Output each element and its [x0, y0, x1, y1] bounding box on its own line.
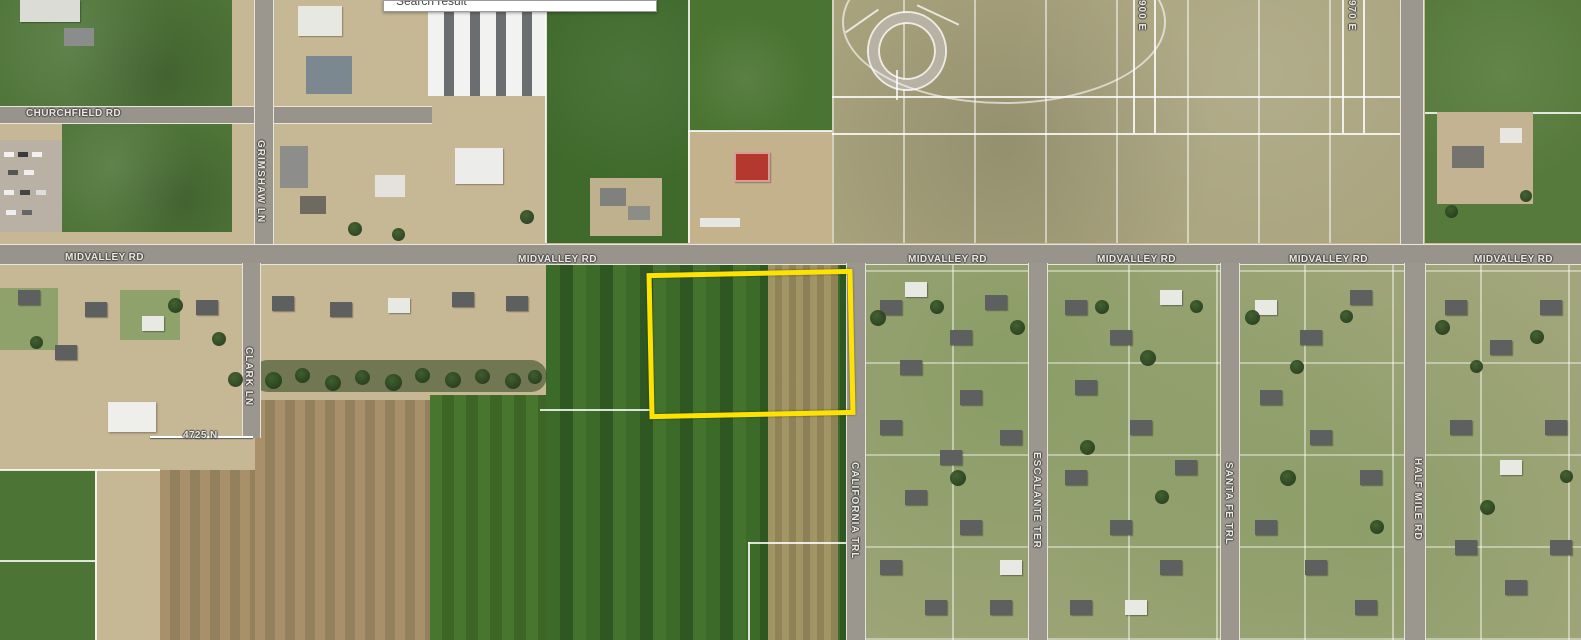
house-roof	[85, 302, 107, 317]
building	[300, 196, 326, 214]
house-roof	[1175, 460, 1197, 475]
tree-canopy	[212, 332, 226, 346]
house-roof	[1550, 540, 1572, 555]
tree-canopy	[30, 336, 43, 349]
parked-car	[8, 170, 18, 175]
tree-canopy	[415, 368, 430, 383]
house-roof	[1355, 600, 1377, 615]
tree-canopy	[1560, 470, 1573, 483]
road-label-california: CALIFORNIA TRL	[849, 462, 860, 560]
parcel-line	[748, 542, 750, 640]
house-roof	[452, 292, 474, 307]
house-roof	[1160, 560, 1182, 575]
building	[375, 175, 405, 197]
house-roof	[1540, 300, 1562, 315]
house-roof	[55, 345, 77, 360]
house-roof	[1260, 390, 1282, 405]
building	[306, 56, 352, 94]
platted-road-line	[1363, 0, 1365, 133]
dirt-lot	[590, 178, 662, 236]
lawn	[120, 290, 180, 340]
house-roof	[142, 316, 164, 331]
tree-canopy	[355, 370, 370, 385]
road-label-clark: CLARK LN	[243, 347, 254, 406]
road-label-midvalley: MIDVALLEY RD	[1474, 254, 1553, 265]
house-roof	[1305, 560, 1327, 575]
road-label-escalante: ESCALANTE TER	[1031, 452, 1042, 549]
building	[455, 148, 503, 184]
road-label-midvalley: MIDVALLEY RD	[1289, 254, 1368, 265]
building	[700, 218, 740, 227]
field	[688, 0, 832, 131]
road-label-midvalley: MIDVALLEY RD	[518, 254, 597, 265]
tree-canopy	[475, 369, 490, 384]
house-roof	[1000, 430, 1022, 445]
parked-car	[4, 190, 14, 195]
house-roof	[1545, 420, 1567, 435]
house-roof	[1070, 600, 1092, 615]
tree-canopy	[1140, 350, 1156, 366]
plowed-field	[255, 400, 430, 640]
road-curve	[842, 0, 1166, 104]
house-roof	[1110, 330, 1132, 345]
house-roof	[1075, 380, 1097, 395]
house-roof	[1450, 420, 1472, 435]
tree-canopy	[1340, 310, 1353, 323]
road-label-970e: 970 E	[1346, 0, 1357, 31]
tree-canopy	[1095, 300, 1109, 314]
house-roof	[960, 520, 982, 535]
parcel-line	[545, 0, 547, 243]
building-red-roof	[734, 152, 770, 182]
parked-car	[22, 210, 32, 215]
house-roof	[1500, 460, 1522, 475]
parcel-line	[95, 469, 97, 640]
parked-car	[18, 152, 28, 157]
tree-canopy	[870, 310, 886, 326]
house-roof	[1350, 290, 1372, 305]
house-roof	[990, 600, 1012, 615]
road-label-santa-fe: SANTA FE TRL	[1223, 462, 1234, 545]
building	[1500, 128, 1522, 143]
parcel-line	[540, 409, 650, 411]
house-roof	[985, 295, 1007, 310]
tree-canopy	[1190, 300, 1203, 313]
house-roof	[1300, 330, 1322, 345]
road-label-900e: 900 E	[1136, 0, 1147, 31]
house-roof	[388, 298, 410, 313]
parked-car	[24, 170, 34, 175]
barn	[108, 402, 156, 432]
tree-canopy	[295, 368, 310, 383]
tree-canopy	[1470, 360, 1483, 373]
parcel-line	[0, 560, 95, 562]
platted-road-line	[1342, 0, 1344, 133]
house-roof	[905, 490, 927, 505]
house-roof	[1000, 560, 1022, 575]
tree-canopy	[1445, 205, 1458, 218]
tree-canopy	[1010, 320, 1025, 335]
tree-canopy	[528, 370, 542, 384]
building	[280, 146, 308, 188]
tree-canopy	[1530, 330, 1544, 344]
house-roof	[272, 296, 294, 311]
road-label-midvalley: MIDVALLEY RD	[908, 254, 987, 265]
tree-canopy	[1480, 500, 1495, 515]
parked-car	[32, 152, 42, 157]
house-roof	[18, 290, 40, 305]
house-roof	[905, 282, 927, 297]
platted-road-line	[1133, 0, 1135, 133]
parcel-highlight[interactable]	[646, 269, 855, 419]
house-roof	[1160, 290, 1182, 305]
tree-canopy	[1245, 310, 1260, 325]
building	[628, 206, 650, 220]
tree-canopy	[1520, 190, 1532, 202]
house-roof	[950, 330, 972, 345]
tree-canopy	[1290, 360, 1304, 374]
warehouse-complex	[428, 0, 546, 96]
road-label-midvalley: MIDVALLEY RD	[1097, 254, 1176, 265]
field	[0, 470, 95, 640]
building	[1452, 146, 1484, 168]
tree-canopy	[348, 222, 362, 236]
map-canvas[interactable]: CHURCHFIELD RD MIDVALLEY RD MIDVALLEY RD…	[0, 0, 1581, 640]
road-label-midvalley: MIDVALLEY RD	[65, 252, 144, 263]
tree-canopy	[505, 373, 521, 389]
parked-car	[36, 190, 46, 195]
parcel-line	[688, 0, 690, 243]
search-result-popup[interactable]: Search result	[383, 0, 657, 12]
tree-canopy	[1280, 470, 1296, 486]
tree-canopy	[1370, 520, 1384, 534]
house-roof	[1310, 430, 1332, 445]
subdivision-lots	[832, 0, 1402, 243]
parcel-line	[688, 130, 832, 132]
road-half-mile	[1400, 0, 1424, 244]
parcel-line	[832, 133, 1402, 135]
house-roof	[1255, 520, 1277, 535]
house-roof	[1125, 600, 1147, 615]
house-roof	[960, 390, 982, 405]
house-roof	[1445, 300, 1467, 315]
house-roof	[940, 450, 962, 465]
parked-car	[20, 190, 30, 195]
road-half-mile	[1404, 263, 1426, 640]
tree-canopy	[1080, 440, 1095, 455]
house-roof	[925, 600, 947, 615]
survey-label-4725n: 4725 N	[183, 430, 218, 441]
house-roof	[1065, 470, 1087, 485]
house-roof	[330, 302, 352, 317]
building	[298, 6, 342, 36]
tree-canopy	[520, 210, 534, 224]
plowed-field	[160, 470, 255, 640]
crop-field	[430, 395, 546, 640]
tree-canopy	[265, 372, 282, 389]
parked-car	[6, 210, 16, 215]
tree-canopy	[950, 470, 966, 486]
house-roof	[1130, 420, 1152, 435]
parked-car	[4, 152, 14, 157]
road-label-churchfield: CHURCHFIELD RD	[26, 108, 121, 119]
road-label-grimshaw: GRIMSHAW LN	[255, 140, 266, 223]
house-roof	[506, 296, 528, 311]
tree-canopy	[930, 300, 944, 314]
search-result-label: Search result	[396, 0, 467, 8]
tree-canopy	[445, 372, 461, 388]
tree-canopy	[385, 374, 402, 391]
building	[64, 28, 94, 46]
tree-canopy	[1435, 320, 1450, 335]
house-roof	[1360, 470, 1382, 485]
house-roof	[196, 300, 218, 315]
road-santa-fe	[1220, 263, 1240, 640]
platted-road-line	[1154, 0, 1156, 133]
tree-canopy	[392, 228, 405, 241]
road-label-half-mile: HALF MILE RD	[1412, 458, 1423, 541]
tree-canopy	[228, 372, 243, 387]
tree-canopy	[325, 375, 341, 391]
house-roof	[1065, 300, 1087, 315]
tree-canopy	[168, 298, 183, 313]
house-roof	[1490, 340, 1512, 355]
parcel-line	[832, 96, 1402, 98]
field	[62, 122, 232, 232]
building	[20, 0, 80, 22]
house-roof	[1455, 540, 1477, 555]
parcel-line	[0, 469, 160, 471]
parcel-line	[748, 542, 848, 544]
house-roof	[880, 560, 902, 575]
house-roof	[880, 420, 902, 435]
tree-canopy	[1155, 490, 1169, 504]
house-roof	[1110, 520, 1132, 535]
building	[600, 188, 626, 206]
house-roof	[900, 360, 922, 375]
house-roof	[1505, 580, 1527, 595]
